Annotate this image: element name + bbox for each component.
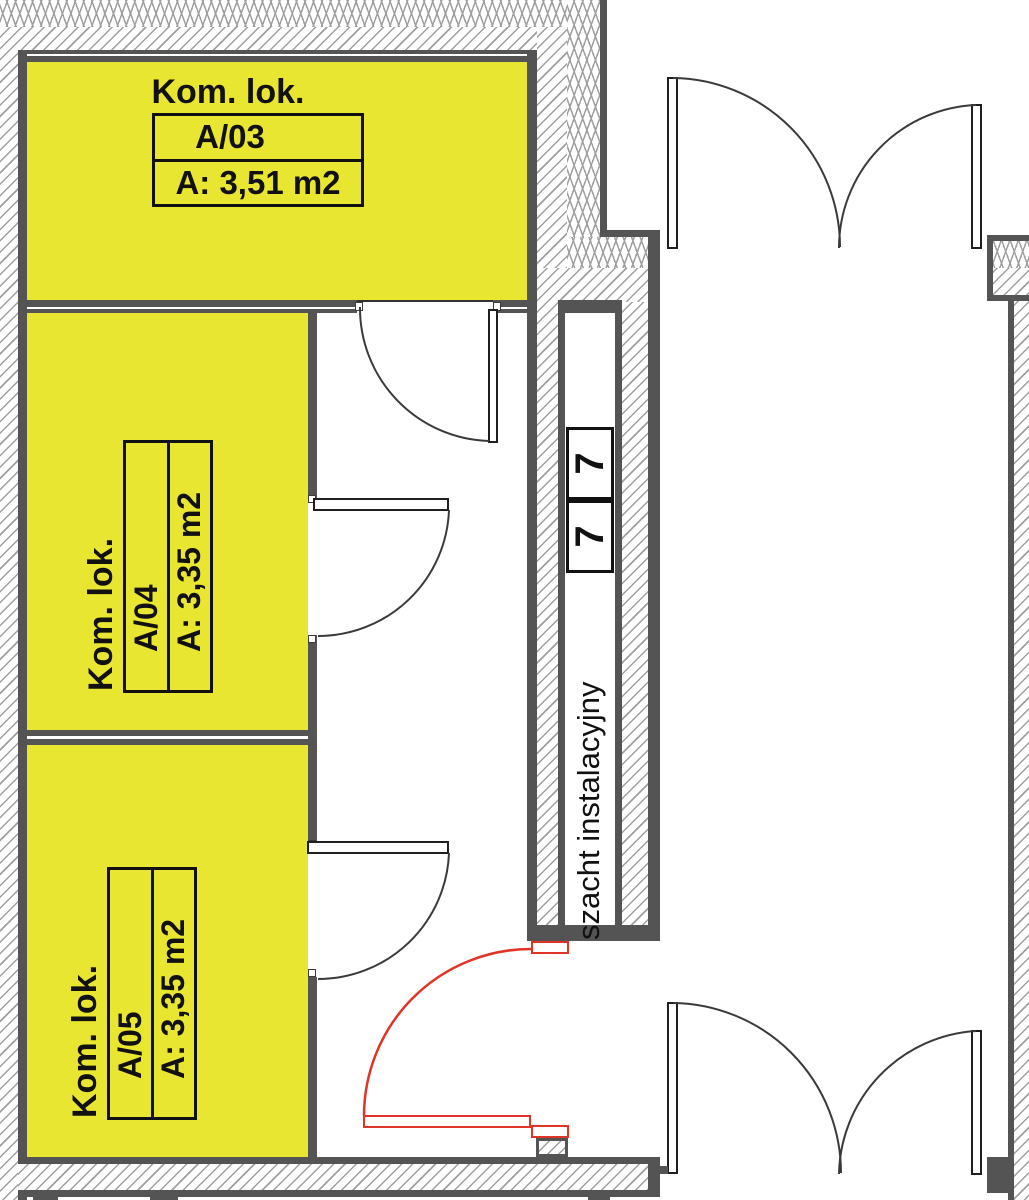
wall-right-bottom-stub <box>987 1157 1008 1193</box>
shaft-compartment-2: 7 <box>566 500 614 573</box>
door-leaf-bottom-double-left <box>667 1002 678 1174</box>
door-arc-a03 <box>360 307 489 441</box>
room-a05-area: A: 3,35 m2 <box>154 870 195 1117</box>
wall-a03-right-shaft-left-border <box>527 60 537 941</box>
wall-left <box>18 50 27 1200</box>
wall-divider-innerline <box>27 736 308 739</box>
room-a05-type-label: Kom. lok. <box>64 867 107 1120</box>
room-a03-type-label: Kom. lok. <box>103 72 353 112</box>
shaft-label: szacht instalacyjny <box>567 577 611 940</box>
wall-right-top-stub <box>987 235 1029 301</box>
shaft-hatch-left-strip <box>537 302 558 941</box>
wall-corridor-west-1 <box>308 313 317 503</box>
shaft-diagonal-band <box>537 268 648 302</box>
door-leaf-a03 <box>488 309 498 443</box>
door-leaf-red <box>363 1115 531 1128</box>
shaft-label-text: szacht instalacyjny <box>571 682 607 940</box>
room-a03-id: A/03 <box>155 116 361 162</box>
door-arc-top-left <box>673 78 840 247</box>
room-a05-label-group: Kom. lok. A/05 A: 3,35 m2 <box>64 867 197 1120</box>
room-a04-label-box: A/04 A: 3,35 m2 <box>123 440 213 693</box>
door-leaf-top-double-left <box>667 77 678 249</box>
wall-hatch-top-crosshatch <box>0 0 600 27</box>
wall-bottom-band-endcap <box>648 1157 660 1197</box>
wall-right-strip-border <box>1008 301 1014 1200</box>
shaft-top-cap <box>558 300 622 313</box>
door-leaf-bottom-double-right <box>971 1030 982 1175</box>
shaft-crosshatch-strip <box>567 0 600 237</box>
stub-border-left <box>987 235 993 301</box>
room-a05-id: A/05 <box>110 870 154 1117</box>
room-a04-id: A/04 <box>126 443 170 690</box>
door-arc-top-right <box>839 105 976 248</box>
shaft-right-border <box>648 230 660 941</box>
door-red-jamb-top <box>531 941 569 954</box>
shaft-hatch-right-strip <box>622 302 648 941</box>
shaft-inner-left-border <box>558 313 565 925</box>
door-red-wall-block <box>536 1138 568 1157</box>
shaft-compartment-2-label: 7 <box>566 500 614 573</box>
door-arc-a05 <box>318 853 449 979</box>
wall-corridor-west-3 <box>308 977 317 1157</box>
door-leaf-a05 <box>307 841 449 854</box>
shaft-crosshatch-band <box>567 237 648 268</box>
wall-a03-bottom-innerline <box>27 307 357 309</box>
floor-plan: 7 7 szacht instalacyjny <box>0 0 1029 1200</box>
door-red-jamb-bottom <box>531 1125 569 1138</box>
shaft-compartment-1-label: 7 <box>566 427 614 500</box>
room-a05-label-box: A/05 A: 3,35 m2 <box>107 867 197 1120</box>
door-leaf-a04 <box>313 498 449 511</box>
jamb-notch-a05-bottom <box>308 969 316 977</box>
room-a04-type-label: Kom. lok. <box>80 440 123 693</box>
door-leaf-top-double-right <box>971 104 982 249</box>
door-arc-bottom-right <box>839 1031 976 1174</box>
shaft-hatch-upper-left <box>537 27 567 268</box>
room-a03-area: A: 3,51 m2 <box>155 162 361 205</box>
door-opening-a03 <box>357 300 493 313</box>
wall-top-a03 <box>18 50 537 62</box>
room-a04-area: A: 3,35 m2 <box>170 443 211 690</box>
wall-bottom-band-topline <box>18 1157 660 1164</box>
wall-top-a03-innerline <box>27 54 527 56</box>
wall-hatch-left-strip <box>0 27 18 1200</box>
shaft-compartment-1: 7 <box>566 427 614 500</box>
door-arc-red <box>364 949 531 1116</box>
shaft-strip-right-border <box>600 0 607 237</box>
door-bottom-left-step <box>658 1166 668 1174</box>
jamb-notch-a03-left <box>355 302 363 311</box>
wall-bottom-band-bottomline <box>18 1190 660 1197</box>
door-arc-a04 <box>318 510 449 636</box>
room-a03-label-box: A/03 A: 3,51 m2 <box>152 113 364 207</box>
door-arc-bottom-left <box>673 1003 841 1173</box>
shaft-band-top-border <box>607 230 648 237</box>
room-a04-label-group: Kom. lok. A/04 A: 3,35 m2 <box>80 440 213 693</box>
jamb-notch-a04-bottom <box>308 635 316 643</box>
shaft-inner-right-border <box>615 313 622 925</box>
wall-bottom-band-hatch <box>18 1164 660 1190</box>
stub-border-top <box>987 235 1029 241</box>
